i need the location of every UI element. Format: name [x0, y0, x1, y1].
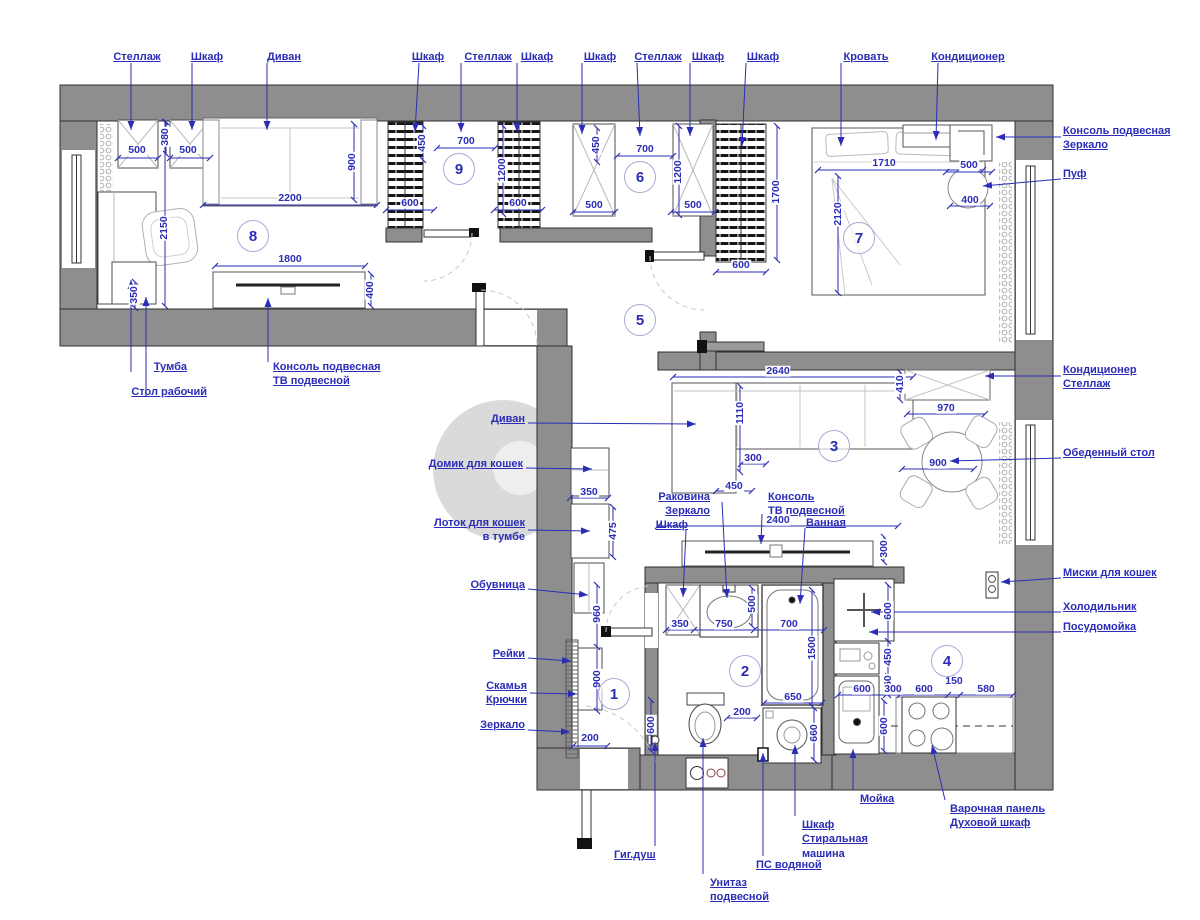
leader-lines — [0, 0, 1200, 920]
leader-dining-table — [950, 458, 1061, 461]
leader-shelf-top-3 — [637, 63, 640, 136]
leader-cabinet-bath — [683, 530, 686, 597]
leader-cat-house — [526, 468, 592, 469]
leader-bench-hooks — [530, 693, 577, 694]
leader-tv-console-living — [761, 514, 762, 544]
leader-wardrobe-top-6 — [742, 63, 746, 146]
leader-pouf — [983, 179, 1061, 186]
leader-cat-litter — [528, 530, 590, 531]
leader-bathtub — [800, 528, 805, 604]
leader-wardrobe-top-2 — [415, 63, 419, 132]
leader-sofa-living — [528, 423, 696, 424]
leader-washbasin — [722, 502, 727, 598]
leader-wall-slats — [528, 658, 571, 661]
leader-cat-bowls — [1001, 578, 1061, 582]
leader-air-conditioner-bedroom — [936, 63, 938, 140]
floor-plan-canvas: СтеллажШкафДиванШкафСтеллажШкафШкафСтелл… — [0, 0, 1200, 920]
leader-hob-oven — [932, 745, 945, 800]
leader-mirror-hall — [528, 730, 570, 732]
leader-shoe-rack — [528, 589, 588, 595]
